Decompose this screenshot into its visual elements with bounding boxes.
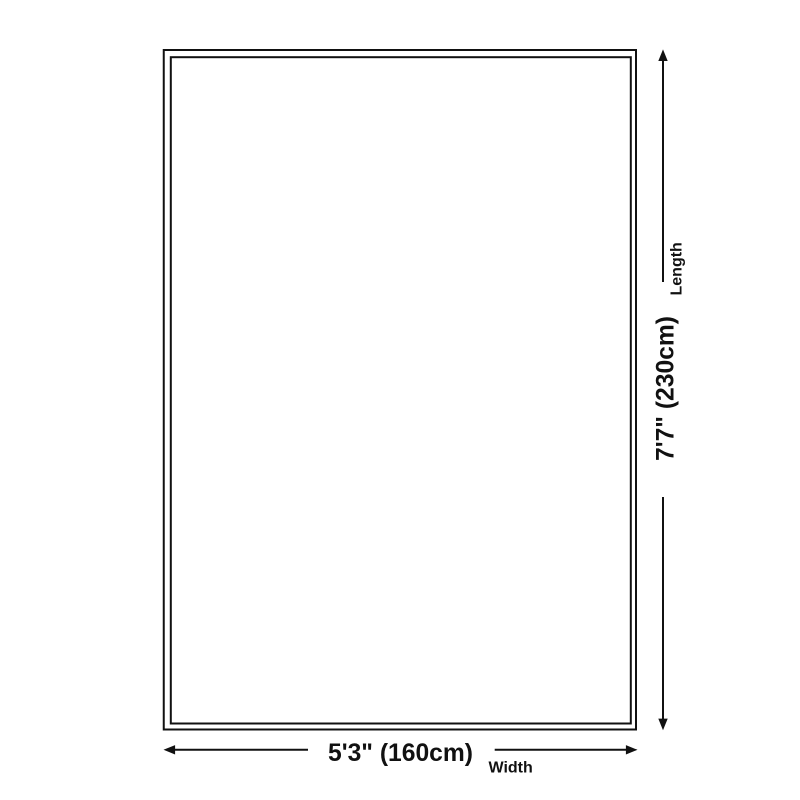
svg-text:7'7" (230cm): 7'7" (230cm) xyxy=(652,316,680,461)
svg-text:Length: Length xyxy=(669,242,686,295)
svg-text:5'3" (160cm): 5'3" (160cm) xyxy=(328,739,473,767)
svg-text:Width: Width xyxy=(489,760,533,777)
